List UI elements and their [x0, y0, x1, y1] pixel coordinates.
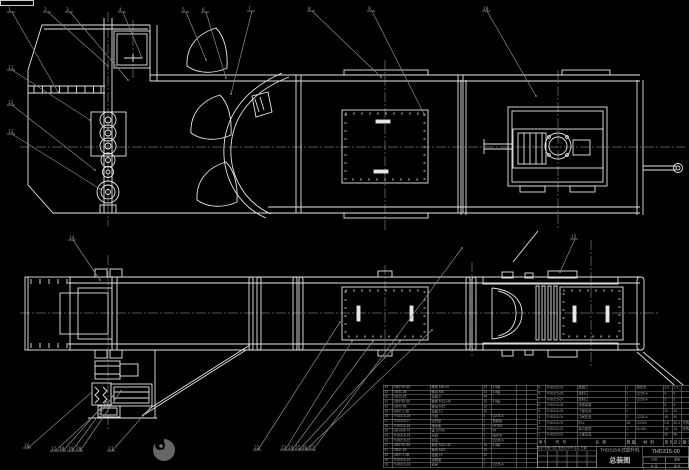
leader-arrow [57, 91, 59, 93]
leader-line [206, 12, 226, 78]
leader-line [48, 12, 108, 66]
leader-arrow [99, 279, 101, 281]
bom-row: 18THD315-18支座2Q235-A [383, 463, 537, 468]
leader-arrow [141, 57, 143, 59]
revision-block: 标记 处数 分区 更改文件号 签名 日期 [538, 447, 598, 468]
callout-label: 22 [254, 445, 260, 451]
leader-arrow [431, 329, 433, 331]
sheet-info-grid: 比例 重量 共 张 第 张 [643, 457, 689, 470]
callout-label: 4 [119, 7, 122, 13]
leader-arrow [399, 340, 401, 342]
callout-label: 11 [8, 65, 14, 71]
callout-label: 17 [51, 446, 57, 452]
product-title: THD315斗式提升机 [597, 447, 642, 454]
callout-label: 25 [295, 445, 301, 451]
leader-arrow [127, 79, 129, 81]
projection-line [513, 231, 538, 262]
callout-label: 23 [281, 445, 287, 451]
leader-line [12, 70, 90, 120]
leader-arrow [535, 95, 537, 97]
bom-table-left: 34GB5780-86螺栓 M8×25244.8级33GB41-86螺母 M82… [383, 385, 538, 468]
leader-arrow [461, 247, 463, 249]
leader-arrow [230, 93, 232, 95]
callout-label: 9 [368, 6, 371, 12]
callout-label: 21 [108, 446, 114, 452]
title-block: 标记 处数 分区 更改文件号 签名 日期 THD315斗式提升机 总装图 THD… [537, 446, 689, 468]
leader-line [73, 240, 100, 280]
callout-label: 18 [59, 446, 65, 452]
flange-joints-plan [249, 277, 644, 350]
leader-arrow [91, 391, 93, 393]
elevation-view [28, 18, 683, 262]
callout-label: 24 [288, 445, 294, 451]
leader-arrow [89, 119, 91, 121]
leader-line [123, 12, 142, 58]
callout-label: 6 [202, 7, 205, 13]
leader-line [372, 11, 424, 114]
leader-line [80, 391, 121, 451]
leader-line [63, 402, 106, 451]
leader-line [231, 11, 252, 94]
leader-line [292, 341, 373, 450]
leader-arrow [380, 76, 382, 78]
leader-line [70, 12, 128, 80]
callout-label: 7 [248, 6, 251, 12]
bom-table-right: 9THD315-09检视门1组合件2.52.58THD315-08进料口1Q23… [537, 385, 689, 446]
callout-label: 26 [302, 445, 308, 451]
leader-arrow [351, 340, 353, 342]
head-section-plan [25, 269, 122, 358]
callout-label: 5 [182, 7, 185, 13]
leader-arrow [559, 271, 561, 273]
callout-label: 10 [483, 6, 489, 12]
drive-unit-plan [88, 350, 157, 418]
leader-arrow [120, 390, 122, 392]
bucket-chain [187, 28, 289, 218]
leader-line [12, 12, 58, 92]
info-sheet-no: 第 张 [666, 464, 689, 470]
leader-arrow [94, 169, 96, 171]
leader-arrow [372, 340, 374, 342]
drawing-number-area: THD315-00 比例 重量 共 张 第 张 [643, 447, 689, 468]
leader-line [28, 392, 92, 448]
info-sheets-total: 共 张 [643, 464, 666, 470]
leader-line [112, 408, 150, 451]
leader-line [487, 11, 536, 96]
title-area: THD315斗式提升机 总装图 [597, 447, 643, 468]
callout-label: 27 [309, 445, 315, 451]
callout-label: 16 [24, 443, 30, 449]
callout-label: 13 [8, 129, 14, 135]
leader-line [312, 11, 381, 77]
callout-label: 2 [44, 7, 47, 13]
leader-arrow [339, 321, 341, 323]
revision-grid [538, 451, 597, 468]
leader-line [560, 239, 575, 272]
callout-label: 1 [8, 7, 11, 13]
leader-arrow [105, 401, 107, 403]
leader-line [12, 134, 100, 189]
leader-arrow [99, 188, 101, 190]
leader-arrow [112, 395, 114, 397]
head-section [28, 18, 270, 213]
sheet-border-corner [1, 1, 34, 6]
leader-arrow [205, 59, 207, 61]
callout-label: 15 [571, 234, 577, 240]
watermark-logo-icon [153, 438, 175, 461]
leader-line [285, 341, 352, 450]
leader-arrow [423, 113, 425, 115]
leader-line [186, 12, 206, 60]
callout-label: 20 [76, 446, 82, 452]
leader-arrow [225, 77, 227, 79]
cad-sheet: 1234567891011121314151617181920212223242… [0, 0, 689, 468]
callout-label: 3 [66, 7, 69, 13]
drive-section-elevation [461, 80, 683, 215]
callout-label: 19 [68, 446, 74, 452]
sheet-title: 总装图 [597, 453, 642, 467]
drawing-number: THD315-00 [643, 447, 689, 458]
callout-label: 8 [308, 6, 311, 12]
callout-label: 14 [69, 235, 75, 241]
leader-arrow [149, 407, 151, 409]
callout-label: 12 [8, 100, 14, 106]
leader-arrow [107, 65, 109, 67]
